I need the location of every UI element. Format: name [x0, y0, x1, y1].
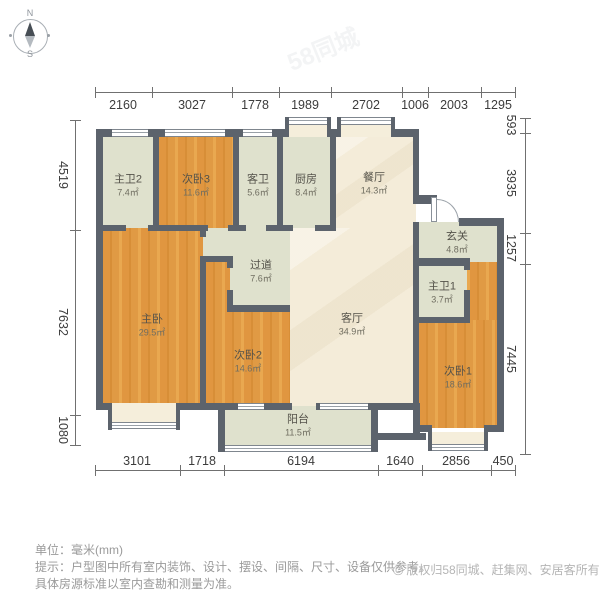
- wall: [371, 403, 378, 452]
- room-name: 客厅: [341, 313, 363, 325]
- dim-tick: [520, 264, 531, 265]
- dim-tick: [224, 465, 225, 476]
- dim-label: 1006: [401, 98, 429, 112]
- wall: [327, 117, 331, 137]
- dim-label: 2160: [109, 98, 137, 112]
- watermark: 58同城: [281, 17, 363, 77]
- compass-north-label: N: [27, 8, 34, 18]
- dim-label: 1640: [386, 454, 414, 468]
- dim-label: 3101: [123, 454, 151, 468]
- bay-window-fill-master: [112, 403, 176, 422]
- dim-tick: [520, 454, 531, 455]
- wall: [464, 290, 470, 323]
- room-label: 主卫27.4㎡: [114, 174, 142, 199]
- wall: [413, 317, 470, 323]
- dim-tick: [378, 465, 379, 476]
- dim-tick: [520, 233, 531, 234]
- bay-window-fill-dining: [341, 125, 391, 137]
- dim-line-right: [525, 118, 526, 454]
- dim-tick: [152, 87, 153, 98]
- dim-label: 1080: [56, 416, 70, 444]
- dim-label: 1989: [291, 98, 319, 112]
- footer-tip2: 具体房源标准以室内查勘和测量为准。: [35, 575, 239, 592]
- wall: [228, 225, 246, 231]
- room-area: 7.6㎡: [250, 273, 272, 284]
- dim-tick: [515, 465, 516, 476]
- copyright-text: 版权归58同城、赶集网、安居客所有: [406, 561, 599, 578]
- room-label: 次卧118.6㎡: [444, 366, 472, 391]
- dim-label: 4519: [56, 161, 70, 189]
- entry-door-swing-arc: [437, 199, 459, 222]
- dim-label: 3935: [504, 169, 518, 197]
- dim-tick: [70, 415, 81, 416]
- wall: [227, 305, 290, 312]
- wall: [148, 129, 165, 137]
- room-name: 阳台: [287, 414, 309, 426]
- room-label: 厨房8.4㎡: [295, 174, 317, 199]
- compass-dot-west: [9, 34, 12, 37]
- wall: [413, 403, 420, 440]
- dim-label: 1778: [241, 98, 269, 112]
- room-area: 34.9㎡: [339, 326, 366, 337]
- window-icon: [165, 129, 225, 137]
- window-icon: [112, 129, 148, 137]
- footer-unit: 单位：毫米(mm): [35, 541, 123, 558]
- room-label: 主卧29.5㎡: [139, 314, 166, 339]
- room-label: 阳台11.5㎡: [285, 414, 311, 439]
- room-area: 14.3㎡: [361, 185, 388, 196]
- wall: [413, 258, 470, 266]
- wall: [176, 403, 180, 430]
- dim-tick: [180, 465, 181, 476]
- wall: [266, 225, 293, 231]
- room-area: 14.6㎡: [234, 363, 262, 374]
- room-name: 厨房: [295, 174, 317, 186]
- compass-needle-south: [25, 36, 35, 48]
- dim-label: 450: [493, 454, 514, 468]
- wall: [225, 129, 243, 137]
- dim-tick: [331, 87, 332, 98]
- wall: [391, 129, 419, 137]
- bay-window-fill-bedroom-1: [432, 432, 484, 444]
- room-area: 4.8㎡: [446, 244, 468, 255]
- dim-label: 7632: [56, 308, 70, 336]
- compass-needle-north: [25, 22, 35, 36]
- wall: [277, 137, 283, 225]
- room-name: 主卫1: [428, 281, 456, 293]
- room-label: 客卫5.6㎡: [247, 174, 269, 199]
- room-name: 次卧3: [182, 174, 210, 186]
- dim-label: 2702: [352, 98, 380, 112]
- dim-tick: [422, 465, 423, 476]
- room-label: 过道7.6㎡: [250, 260, 272, 285]
- dim-tick: [515, 87, 516, 98]
- window-icon: [238, 403, 264, 410]
- window-icon: [243, 129, 272, 137]
- compass-south-label: S: [27, 49, 33, 59]
- window-icon: [112, 422, 176, 429]
- window-icon: [432, 444, 484, 451]
- wall: [391, 117, 395, 137]
- wall: [464, 258, 470, 270]
- dim-tick: [279, 87, 280, 98]
- wall: [200, 256, 206, 403]
- dim-tick: [95, 465, 96, 476]
- bay-window-fill-kitchen: [289, 125, 327, 137]
- room-area: 11.6㎡: [182, 187, 210, 198]
- room-fill-bedroom-2-nook: [203, 259, 230, 315]
- room-label: 次卧214.6㎡: [234, 350, 262, 375]
- room-fill-hallway-strip: [203, 228, 290, 259]
- room-name: 玄关: [446, 231, 468, 243]
- wall: [330, 137, 336, 231]
- wall: [227, 290, 233, 305]
- dim-tick: [520, 133, 531, 134]
- room-area: 29.5㎡: [139, 327, 166, 338]
- room-fill-bedroom-1-col: [467, 262, 500, 326]
- wall: [178, 403, 238, 410]
- wall: [413, 222, 419, 403]
- wall: [200, 225, 206, 237]
- dim-tick: [428, 87, 429, 98]
- dim-label: 3027: [178, 98, 206, 112]
- copyright-notice: © 版权归58同城、赶集网、安居客所有: [393, 561, 600, 578]
- window-icon: [320, 403, 368, 410]
- copyright-icon: ©: [393, 563, 403, 577]
- dim-label: 2003: [440, 98, 468, 112]
- dim-line-bottom: [95, 470, 515, 471]
- dim-tick: [70, 120, 81, 121]
- wall: [484, 425, 488, 451]
- dim-label: 6194: [287, 454, 315, 468]
- room-name: 次卧1: [444, 366, 472, 378]
- room-label: 主卫13.7㎡: [428, 281, 456, 306]
- room-name: 过道: [250, 260, 272, 272]
- window-icon: [289, 117, 327, 125]
- compass-dot-east: [47, 34, 50, 37]
- dim-tick: [481, 87, 482, 98]
- room-name: 次卧2: [234, 350, 262, 362]
- dim-label: 1257: [504, 234, 518, 262]
- room-area: 5.6㎡: [247, 187, 269, 198]
- wall: [148, 225, 208, 231]
- room-area: 3.7㎡: [428, 294, 456, 305]
- room-name: 客卫: [247, 174, 269, 186]
- room-name: 主卫2: [114, 174, 142, 186]
- dim-label: 593: [504, 115, 518, 136]
- dim-line-top: [95, 92, 515, 93]
- wall: [227, 262, 233, 268]
- room-label: 客厅34.9㎡: [339, 313, 366, 338]
- wall: [153, 137, 159, 225]
- room-label: 餐厅14.3㎡: [361, 172, 388, 197]
- dim-tick: [520, 118, 531, 119]
- footer-tip: 提示：户型图中所有室内装饰、设计、摆设、间隔、尺寸、设备仅供参考。: [35, 558, 431, 575]
- dim-label: 1718: [188, 454, 216, 468]
- room-area: 11.5㎡: [285, 427, 311, 438]
- dim-tick: [402, 87, 403, 98]
- wall: [233, 137, 239, 225]
- wall: [413, 137, 419, 195]
- dim-tick: [95, 87, 96, 98]
- dim-label: 7445: [504, 345, 518, 373]
- wall: [497, 218, 504, 432]
- dim-tick: [232, 87, 233, 98]
- wall: [264, 403, 292, 410]
- wall: [96, 129, 103, 410]
- room-name: 餐厅: [363, 172, 385, 184]
- room-area: 8.4㎡: [295, 187, 317, 198]
- compass-icon: N S: [0, 0, 60, 64]
- dim-label: 1295: [484, 98, 512, 112]
- room-area: 18.6㎡: [444, 379, 472, 390]
- floor-plan-page: N S 58同城 单位：毫米(mm) 提示：户型图中所有室内装饰、设计、摆设、间…: [0, 0, 600, 600]
- wall: [218, 403, 225, 452]
- room-area: 7.4㎡: [114, 187, 142, 198]
- window-icon: [341, 117, 391, 125]
- dim-label: 2856: [442, 454, 470, 468]
- dim-line-left: [75, 120, 76, 445]
- dim-tick: [70, 230, 81, 231]
- window-icon: [225, 445, 371, 452]
- dim-tick: [70, 445, 81, 446]
- room-name: 主卧: [141, 314, 163, 326]
- room-label: 次卧311.6㎡: [182, 174, 210, 199]
- room-label: 玄关4.8㎡: [446, 231, 468, 256]
